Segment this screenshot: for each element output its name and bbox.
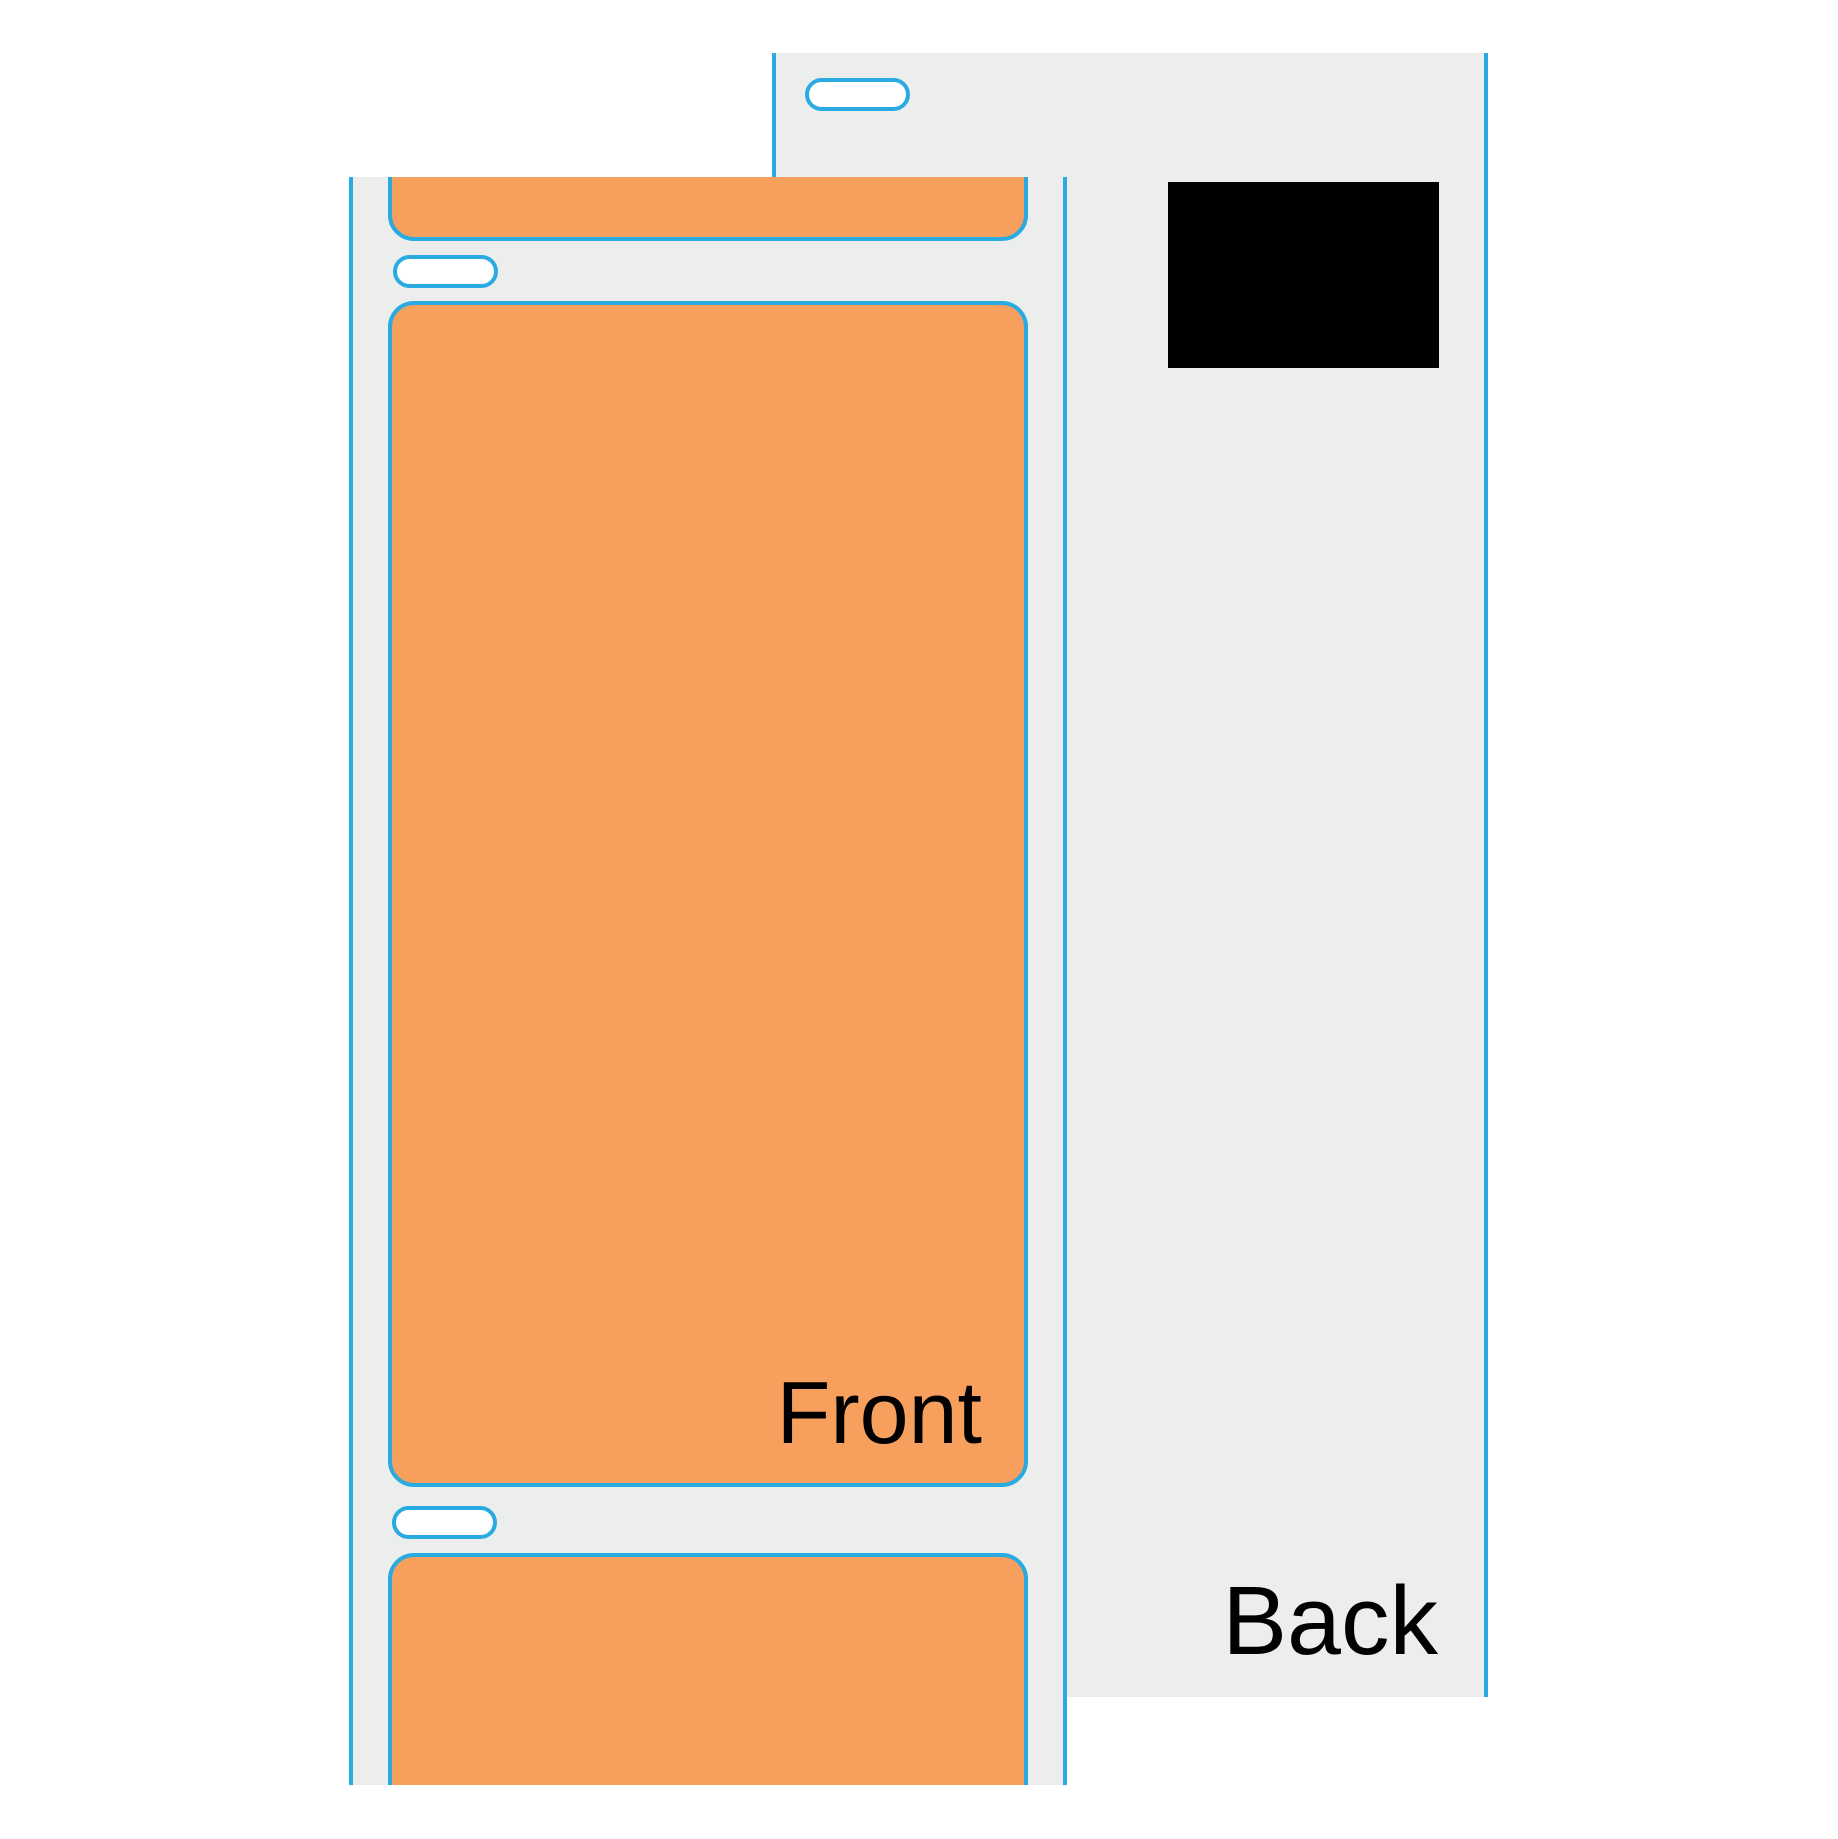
liner-notch-pill-icon	[393, 255, 498, 288]
label-main: Front	[388, 301, 1028, 1487]
liner-notch-pill-icon	[392, 1506, 497, 1539]
label-roll-diagram: Back Front	[0, 0, 1838, 1839]
label-bottom-partial	[388, 1553, 1028, 1785]
black-sensor-mark	[1168, 182, 1439, 368]
back-side-label: Back	[1222, 1572, 1438, 1669]
label-top-partial	[388, 177, 1028, 241]
front-liner-strip: Front	[349, 177, 1067, 1785]
liner-notch-pill-icon	[805, 78, 910, 111]
front-side-label: Front	[777, 1369, 982, 1457]
